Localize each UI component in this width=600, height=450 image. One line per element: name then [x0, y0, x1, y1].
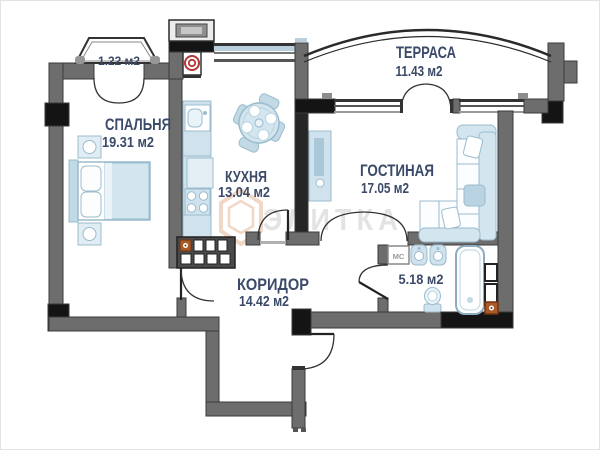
- wall: [286, 232, 319, 245]
- lamp-icon: [83, 141, 96, 154]
- wall: [49, 317, 219, 331]
- window-frame: [214, 43, 295, 46]
- terrace-door-arc: [401, 84, 426, 112]
- wall: [524, 99, 548, 113]
- wall: [378, 245, 388, 264]
- bathroom-door-leaf: [359, 282, 388, 299]
- pillow-icon: [81, 166, 101, 191]
- fridge-icon: [187, 158, 213, 188]
- headboard-icon: [69, 160, 78, 222]
- kitchen-name-label: КУХНЯ: [225, 169, 267, 186]
- tv-unit-knob: [316, 179, 324, 187]
- sofa-cushion: [464, 185, 485, 206]
- wall-stub: [177, 298, 186, 317]
- window-frame: [459, 99, 524, 102]
- sofa-icon: [419, 125, 496, 242]
- kitchen-cabinets-icon: [177, 237, 235, 268]
- window-frame: [459, 111, 524, 113]
- wall: [295, 99, 335, 113]
- cabinet-cell: [194, 254, 204, 264]
- bed-blanket-fold: [105, 163, 112, 219]
- dining-table-icon: [224, 86, 294, 160]
- wall: [309, 312, 441, 328]
- wall: [169, 52, 183, 79]
- living-area-label: 17.05 м2: [361, 180, 409, 197]
- balcony-door-arc: [94, 78, 119, 103]
- vent-tick: [322, 93, 332, 99]
- bedroom-furniture: [69, 136, 150, 245]
- corridor-name-label: КОРИДОР: [237, 275, 309, 294]
- drain-icon: [467, 297, 473, 303]
- window-frame: [214, 52, 295, 54]
- floor-plan-page: ЭЛИТКА: [0, 0, 600, 450]
- wall-foot: [301, 428, 306, 432]
- cabinet-cell: [220, 254, 230, 264]
- lamp-icon: [83, 228, 96, 241]
- washbasin-tap: [437, 247, 440, 250]
- window-frame: [334, 105, 401, 107]
- toilet-tank: [424, 304, 441, 312]
- window-frame: [459, 105, 524, 107]
- washbasin-tap: [418, 247, 421, 250]
- cabinet-cell: [206, 240, 215, 251]
- terrace-door-arc: [426, 84, 451, 112]
- floor-drain-center: [491, 307, 493, 309]
- wall: [292, 369, 305, 428]
- toilet-icon: [424, 288, 441, 313]
- corridor-area-label: 14.42 м2: [239, 293, 289, 310]
- washing-machine-label: МС: [393, 252, 405, 261]
- terrace-area-label: 11.43 м2: [396, 63, 443, 80]
- tv-screen: [314, 138, 324, 176]
- window-glazing: [214, 46, 295, 51]
- wall: [206, 402, 306, 416]
- kitchen-sink-bowl: [188, 109, 202, 127]
- balcony-area-label: 1.22 м2: [98, 54, 140, 68]
- burner-icon: [199, 192, 207, 200]
- boiler-icon: [485, 264, 497, 281]
- wall-column: [45, 103, 69, 126]
- threshold: [260, 241, 286, 244]
- wall: [295, 43, 308, 99]
- living-name-label: ГОСТИНАЯ: [360, 161, 434, 180]
- wall: [548, 43, 564, 101]
- window-frame: [334, 99, 401, 102]
- sofa-armrest: [419, 228, 480, 242]
- cabinet-cell: [181, 254, 191, 264]
- washbasin-bowl: [415, 252, 424, 261]
- cabinet-cell: [218, 240, 227, 251]
- balcony-door-arc: [119, 78, 144, 103]
- wall: [498, 111, 513, 328]
- cabinet-cell: [207, 254, 217, 264]
- bedroom-name-label: СПАЛЬНЯ: [105, 115, 171, 134]
- wall: [453, 99, 460, 113]
- hob-dot-center: [185, 245, 187, 247]
- bathtub-icon: [456, 246, 484, 314]
- window-frame: [334, 111, 401, 113]
- pillow-icon: [441, 207, 461, 230]
- wall-stub: [378, 298, 388, 312]
- burner-icon: [187, 204, 195, 212]
- watermark-logo-inner-icon: [229, 201, 253, 233]
- anchor-mark: [75, 56, 85, 64]
- bathroom-area-label: 5.18 м2: [399, 272, 444, 287]
- terrace-name-label: ТЕРРАСА: [396, 43, 456, 62]
- wall-foot: [293, 428, 298, 432]
- cabinet-cell: [194, 240, 203, 251]
- kitchen-area-label: 13.04 м2: [218, 185, 270, 201]
- toilet-bowl-inner: [428, 291, 437, 301]
- floor-plan: ЭЛИТКА: [1, 1, 600, 450]
- window-sill: [214, 59, 295, 62]
- anchor-mark: [150, 56, 160, 64]
- pillow-icon: [81, 192, 101, 217]
- wall: [183, 75, 201, 78]
- burner-icon: [187, 192, 195, 200]
- bedroom-area-label: 19.31 м2: [102, 134, 154, 151]
- faucet-icon: [203, 111, 207, 115]
- washbasin-bowl: [434, 252, 443, 261]
- entrance-door-arc: [299, 334, 334, 369]
- burner-icon: [199, 204, 207, 212]
- wall: [564, 61, 577, 83]
- vent-tick: [518, 93, 528, 99]
- wall: [295, 99, 308, 245]
- window-tick: [295, 38, 307, 42]
- ventilation-shaft-core: [181, 27, 202, 34]
- bathroom-door-arc: [359, 265, 388, 282]
- bedroom-door-arc: [181, 268, 214, 301]
- wall: [169, 41, 214, 52]
- room-labels: 1.22 м2 СПАЛЬНЯ 19.31 м2 КУХНЯ 13.04 м2 …: [98, 43, 456, 310]
- wall-column: [292, 309, 311, 335]
